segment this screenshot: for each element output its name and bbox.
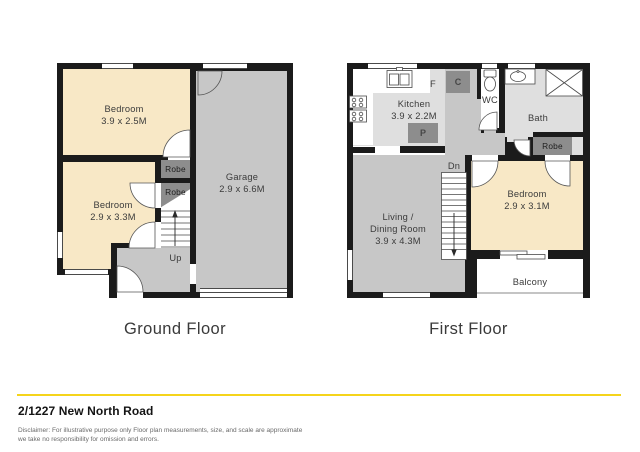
kitchen-sink-icon: [387, 68, 412, 88]
room-name: Bedroom: [63, 199, 163, 211]
fridge-label: F: [423, 78, 443, 90]
balcony-label: Balcony: [480, 276, 580, 288]
room-dims: 2.9 x 3.3M: [63, 211, 163, 223]
accent-divider-line: [17, 394, 621, 396]
room-name: Living /: [348, 211, 448, 223]
bath-sink-icon: [505, 69, 535, 84]
door-arc-bedroom-left: [472, 161, 498, 187]
shower-icon: [546, 70, 583, 97]
door-arc-bedroom2: [129, 222, 155, 248]
toilet-icon: [484, 70, 496, 91]
bedroom2-label: Bedroom 2.9 x 3.3M: [63, 199, 163, 223]
disclaimer-text: Disclaimer: For illustrative purpose onl…: [18, 427, 438, 444]
door-arc-entry: [117, 266, 143, 292]
room-name: Dining Room: [348, 223, 448, 235]
room-dims: 2.9 x 6.6M: [192, 183, 292, 195]
disclaimer-line1: Disclaimer: For illustrative purpose onl…: [18, 427, 438, 436]
robe2-label: Robe: [161, 187, 190, 197]
cupboard-label: C: [446, 71, 470, 93]
robe-label: Robe: [533, 137, 572, 155]
door-arc-wc: [479, 112, 497, 130]
room-dims: 3.9 x 4.3M: [348, 235, 448, 247]
room-name: Kitchen: [364, 98, 464, 110]
wc-label: WC: [471, 94, 509, 106]
first-floor-caption: First Floor: [347, 320, 590, 339]
ground-floor-plan: Bedroom 3.9 x 2.5M Bedroom 2.9 x 3.3M Ga…: [57, 63, 293, 298]
door-arc-garage: [198, 71, 222, 95]
first-floor-plan: Kitchen 3.9 x 2.2M F C P WC Bath Robe Be…: [347, 63, 590, 298]
bedroom1-label: Bedroom 3.9 x 2.5M: [74, 103, 174, 127]
room-name: Garage: [192, 171, 292, 183]
robe1-label: Robe: [161, 164, 190, 174]
stairs-up-label: Up: [161, 252, 190, 264]
kitchen-label: Kitchen 3.9 x 2.2M: [364, 98, 464, 122]
room-dims: 2.9 x 3.1M: [477, 200, 577, 212]
garage-label: Garage 2.9 x 6.6M: [192, 171, 292, 195]
door-arc-bath: [514, 140, 530, 156]
ground-floor-caption: Ground Floor: [57, 320, 293, 339]
bedroom-label: Bedroom 2.9 x 3.1M: [477, 188, 577, 212]
room-name: Bedroom: [477, 188, 577, 200]
stairs-down-label: Dn: [441, 160, 467, 172]
bath-label: Bath: [502, 112, 574, 124]
living-label: Living / Dining Room 3.9 x 4.3M: [348, 211, 448, 247]
floor-plan-page: Bedroom 3.9 x 2.5M Bedroom 2.9 x 3.3M Ga…: [0, 0, 640, 452]
door-arc-bedroom1: [163, 130, 190, 157]
room-name: Bedroom: [74, 103, 174, 115]
pantry-label: P: [408, 123, 438, 143]
address-title: 2/1227 New North Road: [18, 404, 518, 418]
disclaimer-line2: we take no responsibility for omission a…: [18, 436, 438, 445]
door-arc-bedroom-right: [545, 161, 570, 186]
room-dims: 3.9 x 2.2M: [364, 110, 464, 122]
sliding-door-icon: [500, 251, 545, 259]
room-dims: 3.9 x 2.5M: [74, 115, 174, 127]
